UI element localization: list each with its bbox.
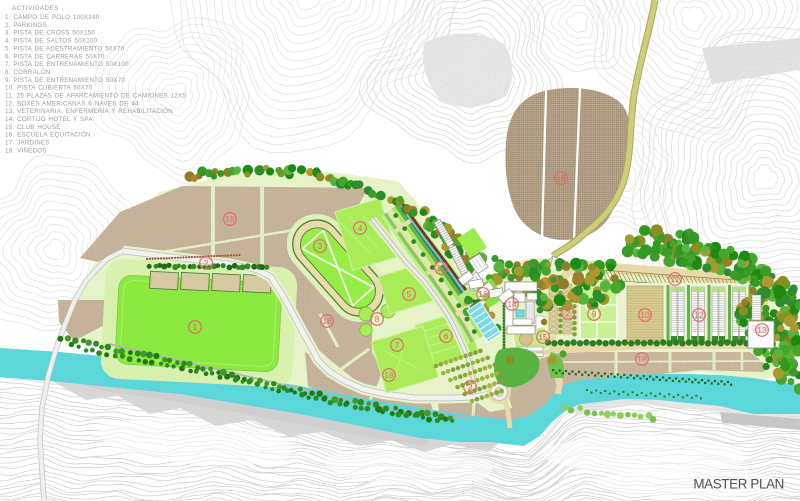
svg-text:18: 18 (225, 214, 235, 224)
svg-text:2: 2 (204, 258, 209, 268)
svg-text:16. ESCUELA EQUITACIÓN: 16. ESCUELA EQUITACIÓN (5, 132, 91, 139)
svg-text:9. PISTA DE ENTRENAMIENTO: 9. PISTA DE ENTRENAMIENTO 50X70 (5, 77, 125, 84)
svg-text:18: 18 (384, 370, 394, 380)
svg-text:10: 10 (640, 310, 650, 320)
svg-text:1: 1 (193, 322, 198, 332)
svg-text:MASTER PLAN: MASTER PLAN (693, 477, 784, 492)
svg-text:13. VETERINARIA, ENFERMERÍA: 13. VETERINARIA, ENFERMERÍA Y REHABILITA… (5, 108, 173, 115)
svg-text:15. CLUB HOUSE: 15. CLUB HOUSE (5, 124, 61, 131)
svg-text:12. BOXES AMERICANAS 6 NAV: 12. BOXES AMERICANAS 6 NAVES DE 44. (5, 100, 141, 107)
svg-text:7: 7 (395, 340, 400, 350)
svg-text:17: 17 (436, 263, 446, 273)
svg-text:10. PISTA CUBIERTA 50X70: 10. PISTA CUBIERTA 50X70 (5, 85, 93, 92)
svg-text:ACTIVIDADES: ACTIVIDADES (12, 5, 59, 12)
svg-text:4: 4 (358, 223, 363, 233)
svg-text:2. PARKINGS: 2. PARKINGS (5, 22, 47, 29)
svg-text:2: 2 (468, 382, 473, 392)
svg-text:7. PISTA DE ENTRENAMIENTO: 7. PISTA DE ENTRENAMIENTO 50X100 (5, 61, 129, 68)
svg-text:3. PISTA DE CROSS 50X150: 3. PISTA DE CROSS 50X150 (5, 30, 96, 37)
svg-text:17. JARDINES: 17. JARDINES (5, 140, 50, 147)
svg-text:6: 6 (444, 331, 449, 341)
svg-text:12: 12 (694, 310, 704, 320)
svg-text:18: 18 (322, 316, 332, 326)
svg-text:11: 11 (671, 274, 680, 284)
svg-text:5: 5 (407, 289, 412, 299)
svg-text:13: 13 (757, 325, 767, 335)
svg-text:11. 25 PLAZAS DE APARCAMIE: 11. 25 PLAZAS DE APARCAMIENTO DE CAMIONE… (5, 93, 186, 100)
svg-text:16: 16 (478, 289, 488, 299)
svg-text:8: 8 (375, 314, 380, 324)
svg-text:18: 18 (637, 354, 647, 364)
svg-text:3: 3 (318, 241, 323, 251)
svg-text:18: 18 (556, 173, 566, 183)
svg-text:4. PISTA DE SALTOS 50X100: 4. PISTA DE SALTOS 50X100 (5, 38, 98, 45)
svg-text:18. VIÑEDOS: 18. VIÑEDOS (5, 147, 47, 154)
svg-text:8. CORRALON: 8. CORRALON (5, 69, 51, 76)
svg-text:15: 15 (538, 332, 548, 342)
svg-text:5. PISTA DE ADESTRAMIENTO: 5. PISTA DE ADESTRAMIENTO 50X70 (5, 45, 125, 52)
svg-text:14: 14 (507, 299, 517, 309)
svg-text:14. CORTIJO HOTEL Y SPA: 14. CORTIJO HOTEL Y SPA (5, 116, 93, 123)
svg-text:6. PISTA DE CARRERAS 50X70: 6. PISTA DE CARRERAS 50X70 (5, 53, 105, 60)
svg-text:1. CAMPO DE POLO 100X240: 1. CAMPO DE POLO 100X240 (5, 14, 100, 21)
svg-text:2: 2 (566, 308, 571, 318)
svg-text:9: 9 (592, 309, 597, 319)
